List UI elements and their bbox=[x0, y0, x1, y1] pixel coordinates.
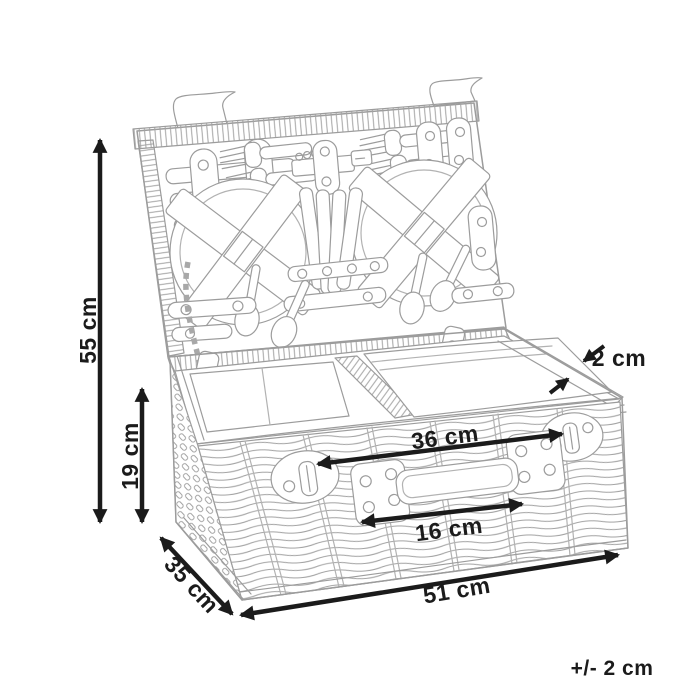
basket-body bbox=[168, 325, 628, 600]
dim-label-19cm: 19 cm bbox=[117, 422, 143, 490]
dim-overall-height: 55 cm bbox=[75, 140, 101, 522]
picnic-basket-dimension-diagram: 55 cm 19 cm 2 cm 36 cm 16 cm 35 cm 51 cm… bbox=[0, 0, 700, 700]
product-image[interactable]: 55 cm 19 cm 2 cm 36 cm 16 cm 35 cm 51 cm… bbox=[0, 0, 700, 700]
dim-label-2cm: 2 cm bbox=[592, 345, 646, 371]
dim-label-51cm: 51 cm bbox=[421, 572, 492, 609]
tolerance-note: +/- 2 cm bbox=[571, 657, 654, 680]
dim-label-55cm: 55 cm bbox=[75, 296, 101, 364]
dim-body-height: 19 cm bbox=[117, 389, 143, 522]
